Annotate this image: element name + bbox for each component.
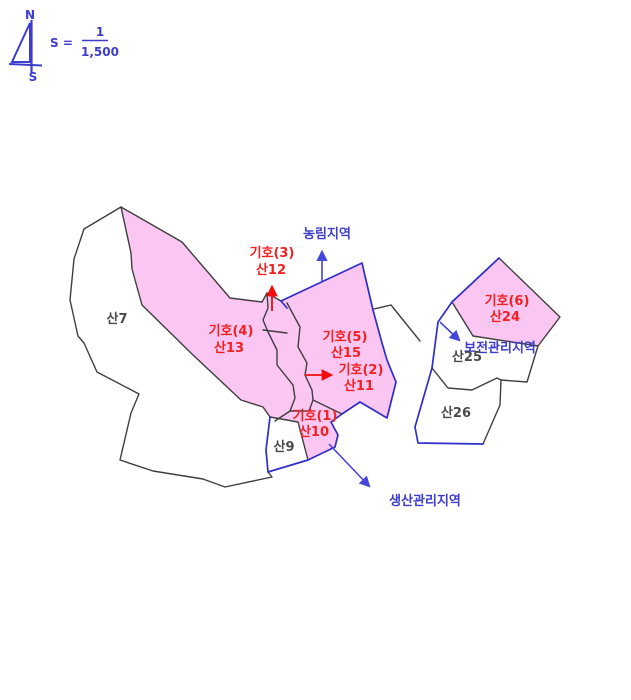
scale-denominator: 1,500 bbox=[81, 45, 119, 59]
scale-fraction: S = 1 1,500 bbox=[50, 25, 119, 59]
boundary-wedge bbox=[374, 305, 420, 341]
production-zone-arrow bbox=[329, 444, 369, 486]
label-symbol-san11: 기호(2) bbox=[339, 363, 384, 378]
north-arrow: N S bbox=[9, 8, 42, 84]
label-name-san24: 산24 bbox=[490, 309, 520, 325]
label-symbol-san15: 기호(5) bbox=[323, 330, 368, 345]
label-name-san10: 산10 bbox=[299, 424, 329, 440]
label-name-san13: 산13 bbox=[214, 340, 244, 356]
north-arrow-triangle bbox=[12, 23, 30, 62]
label-name-san11: 산11 bbox=[344, 378, 374, 394]
label-name-san12: 산12 bbox=[256, 262, 286, 278]
label-name-san25: 산25 bbox=[452, 349, 482, 365]
label-name-san9: 산9 bbox=[273, 439, 294, 455]
north-label: N bbox=[25, 8, 35, 22]
scale-numerator: 1 bbox=[96, 25, 104, 39]
north-arrow-base bbox=[9, 64, 42, 66]
zone-label-production: 생산관리지역 bbox=[389, 493, 461, 509]
scale-label: S = bbox=[50, 36, 73, 50]
label-symbol-san10: 기호(1) bbox=[293, 409, 338, 424]
zone-label-agriculture: 농림지역 bbox=[303, 226, 351, 242]
cadastral-map-page: N S S = 1 1,500 bbox=[0, 0, 631, 700]
label-name-san7: 산7 bbox=[106, 311, 127, 327]
label-symbol-san12: 기호(3) bbox=[250, 246, 295, 261]
label-symbol-san24: 기호(6) bbox=[485, 294, 530, 309]
label-name-san26: 산26 bbox=[441, 405, 471, 421]
south-label: S bbox=[29, 70, 38, 84]
label-name-san15: 산15 bbox=[331, 345, 361, 361]
cadastral-map-canvas: N S S = 1 1,500 bbox=[0, 0, 631, 700]
label-symbol-san13: 기호(4) bbox=[209, 324, 254, 339]
